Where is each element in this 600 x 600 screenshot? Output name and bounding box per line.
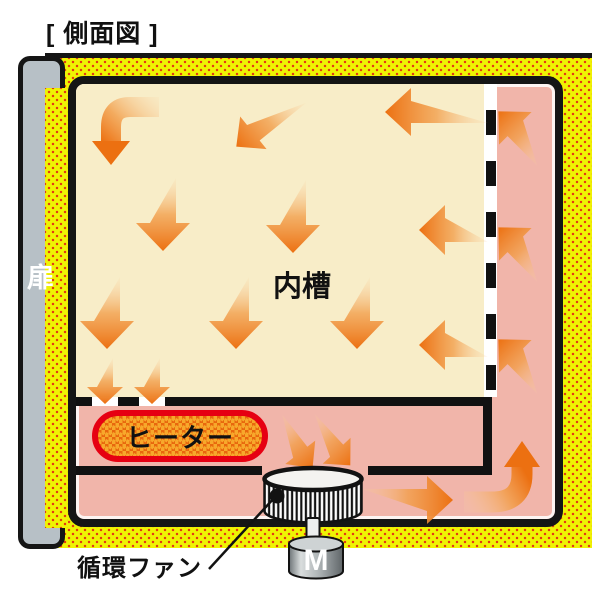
heater: ヒーター [92, 410, 268, 462]
fan-label: 循環ファン [77, 548, 202, 583]
heater-bottom-wall-left [76, 466, 262, 475]
duct-vertical-wall [483, 397, 492, 475]
dashed-partition-dashes [486, 84, 496, 397]
oven-side-view-diagram: [ 側面図 ] ヒーター [0, 0, 600, 600]
chamber-label: 内槽 [273, 263, 331, 305]
dashed-partition [484, 84, 497, 397]
vent-gap-right [139, 397, 165, 406]
insulation-left-strip [45, 88, 68, 528]
diagram-title: [ 側面図 ] [46, 14, 159, 50]
heater-bottom-wall-right [368, 466, 490, 475]
heater-label: ヒーター [126, 418, 234, 455]
inner-chamber [76, 84, 484, 397]
door-label: 扉 [27, 256, 54, 295]
motor-label: M [304, 544, 329, 577]
vent-gap-left [92, 397, 118, 406]
